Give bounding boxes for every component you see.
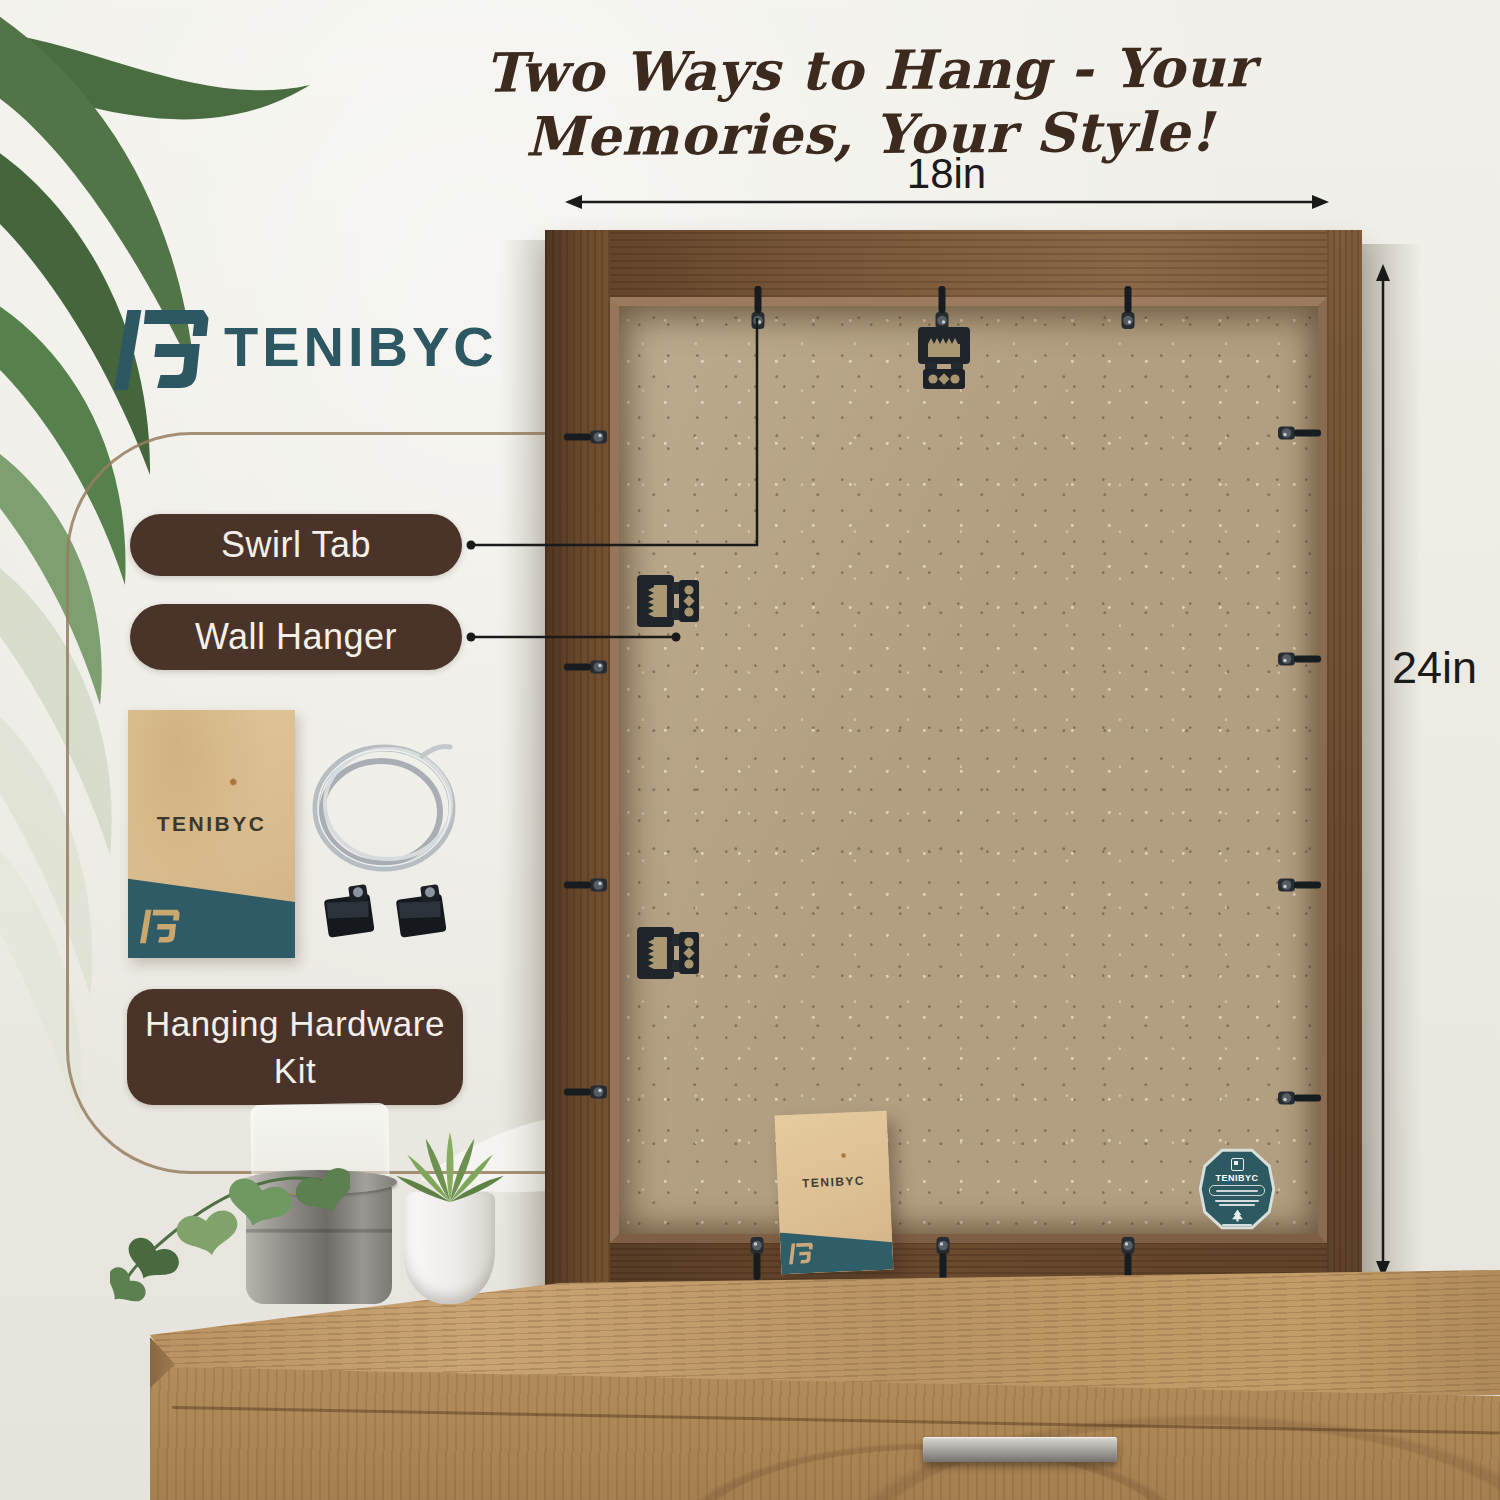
pothos-plant-icon	[110, 1145, 350, 1315]
white-planter-pot	[403, 1192, 495, 1304]
drawer-handle	[923, 1437, 1117, 1462]
product-photo-canvas: Two Ways to Hang - Your Memories, Your S…	[0, 0, 1500, 1500]
succulent-plant-icon	[394, 1126, 506, 1206]
